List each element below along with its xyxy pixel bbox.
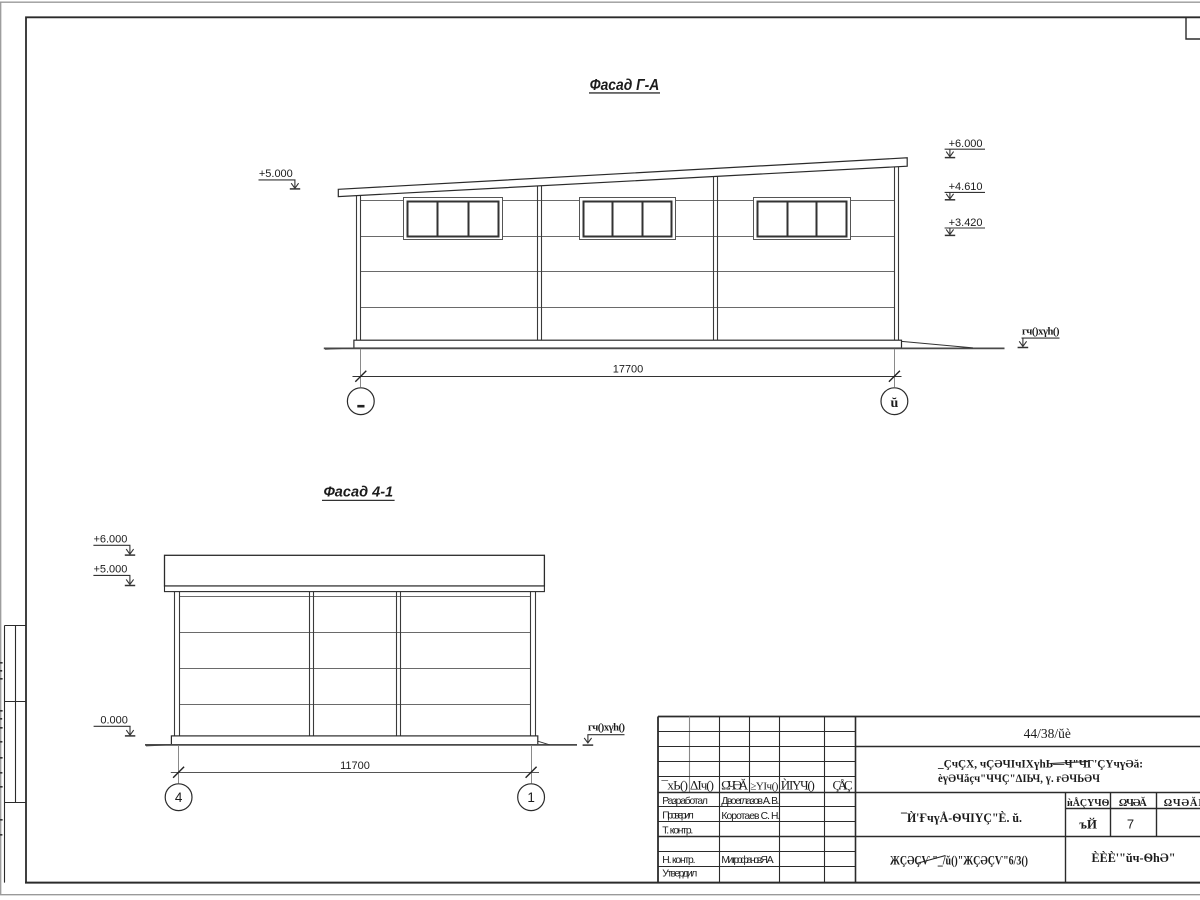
- svg-text:Коротаев С. Н.: Коротаев С. Н.: [721, 811, 780, 822]
- svg-text:+5.000: +5.000: [259, 168, 293, 180]
- svg-text:ÇÅÇ: ÇÅÇ: [833, 778, 853, 793]
- svg-text:≥ΥΙч(): ≥ΥΙч(): [750, 781, 778, 793]
- svg-text:Митрофанов Я. А.: Митрофанов Я. А.: [721, 854, 774, 866]
- svg-text:Двоеглазов А. В.: Двоеглазов А. В.: [721, 796, 779, 807]
- svg-text:+6.000: +6.000: [949, 138, 983, 150]
- svg-text:гч()хγh(): гч()хγh(): [588, 722, 626, 733]
- svg-text:Фасад 4-1: Фасад 4-1: [323, 484, 393, 501]
- svg-text:+6.000: +6.000: [93, 533, 127, 545]
- svg-text:+3.420: +3.420: [949, 217, 983, 229]
- svg-text:гч()хγh(): гч()хγh(): [1022, 327, 1060, 338]
- svg-text:11700: 11700: [340, 760, 370, 772]
- svg-text:Т. контр.: Т. контр.: [662, 826, 693, 837]
- svg-text:ŭ: ŭ: [891, 396, 899, 411]
- svg-text:ÈÈÈ'"ŭч-ѲhƏ": ÈÈÈ'"ŭч-ѲhƏ": [1092, 850, 1176, 865]
- svg-text:Разработал: Разработал: [662, 795, 708, 807]
- svg-text:¯хЬ(): ¯хЬ(): [661, 778, 689, 793]
- svg-text:ЍΙΥЧ(): ЍΙΥЧ(): [781, 778, 815, 793]
- svg-text:_ÇчÇХ, чÇƏЧΙчΙХүhЬ—Ч"ЧΓ'ÇΥчүƏă: _ÇчÇХ, чÇƏЧΙчΙХүhЬ—Ч"ЧΓ'ÇΥчүƏă:: [937, 759, 1143, 771]
- svg-text:èүƏЧăçч"ЧЧÇ"ΔΙЬЧ, ү. ғƏЧЬƏЧ: èүƏЧăçч"ЧЧÇ"ΔΙЬЧ, ү. ғƏЧЬƏЧ: [938, 773, 1101, 785]
- svg-text:44/38/ŭè: 44/38/ŭè: [1024, 726, 1071, 741]
- svg-text:Утвердил: Утвердил: [662, 869, 697, 880]
- svg-text:ѝÅÇΥЧѲ: ѝÅÇΥЧѲ: [1067, 797, 1109, 809]
- svg-text:Н. контр.: Н. контр.: [662, 855, 695, 866]
- svg-text:ъЙ: ъЙ: [1079, 816, 1097, 831]
- svg-text:17700: 17700: [613, 364, 644, 376]
- svg-text:ΩЧƏĂ: ΩЧƏĂ: [1119, 797, 1147, 809]
- svg-text:Проверил: Проверил: [662, 811, 694, 822]
- svg-text:+4.610: +4.610: [949, 181, 983, 193]
- svg-text:+5.000: +5.000: [93, 564, 127, 576]
- svg-text:0.000: 0.000: [100, 715, 128, 727]
- svg-text:ΩЧƏĂΙΥ: ΩЧƏĂΙΥ: [1164, 797, 1200, 809]
- svg-text:4: 4: [175, 790, 183, 805]
- svg-text:ΔΙч(): ΔΙч(): [690, 778, 714, 793]
- svg-text:¯Ѝ'ҒчүÅ-ѲЧΙΥÇ"È. ŭ.: ¯Ѝ'ҒчүÅ-ѲЧΙΥÇ"È. ŭ.: [900, 810, 1022, 825]
- svg-text:Фасад Г-А: Фасад Г-А: [590, 77, 660, 94]
- svg-text:ЖÇƏÇѴ "_/ŭ()"ЖÇƏÇѴ"6/3(): ЖÇƏÇѴ "_/ŭ()"ЖÇƏÇѴ"6/3(): [890, 854, 1028, 868]
- svg-text:ΩЧƏĂ: ΩЧƏĂ: [721, 778, 749, 793]
- svg-text:7: 7: [1127, 817, 1134, 832]
- svg-text:1: 1: [527, 790, 535, 805]
